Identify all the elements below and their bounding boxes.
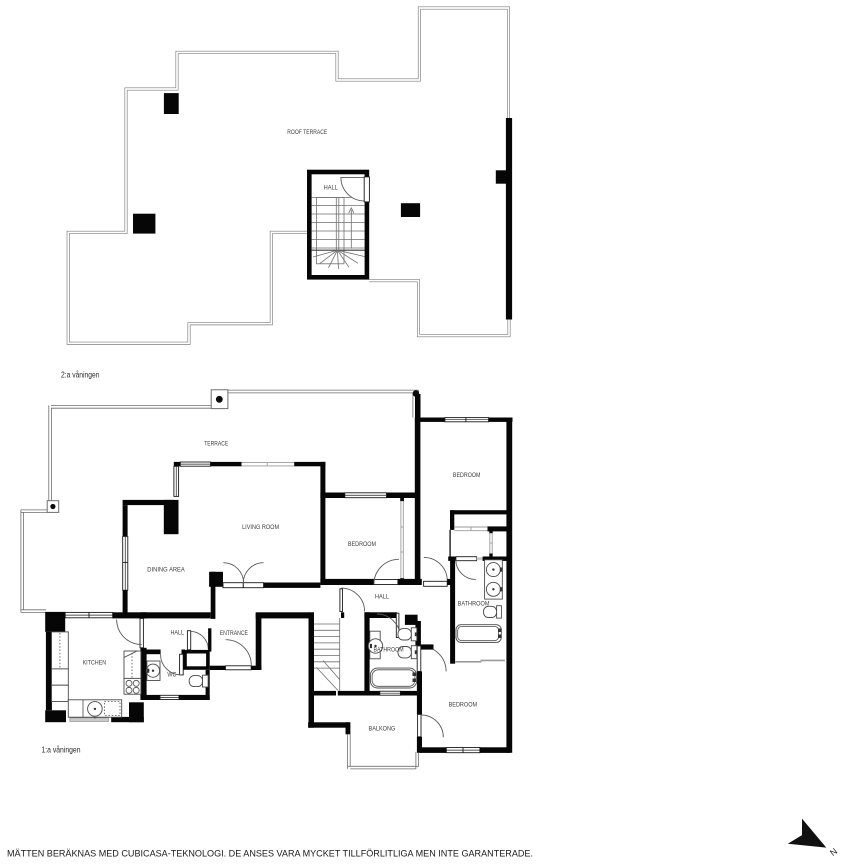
svg-text:HALL: HALL xyxy=(324,185,339,191)
svg-text:HALL: HALL xyxy=(375,594,390,600)
svg-text:2:a våningen: 2:a våningen xyxy=(61,370,100,379)
svg-text:BALKONG: BALKONG xyxy=(369,726,396,732)
svg-text:HALL: HALL xyxy=(171,631,185,637)
svg-text:WC: WC xyxy=(167,672,177,678)
svg-text:LIVING ROOM: LIVING ROOM xyxy=(242,525,279,531)
svg-text:ROOF TERRACE: ROOF TERRACE xyxy=(287,130,327,136)
svg-text:MÄTTEN BERÄKNAS MED CUBICASA-T: MÄTTEN BERÄKNAS MED CUBICASA-TEKNOLOGI. … xyxy=(7,849,533,859)
svg-text:DINING AREA: DINING AREA xyxy=(147,567,185,573)
svg-text:BATHROOM: BATHROOM xyxy=(374,648,404,654)
svg-text:TERRACE: TERRACE xyxy=(204,441,228,447)
svg-text:KITCHEN: KITCHEN xyxy=(83,661,107,667)
svg-text:BEDROOM: BEDROOM xyxy=(449,702,478,708)
svg-text:1:a våningen: 1:a våningen xyxy=(42,746,81,755)
svg-text:BEDROOM: BEDROOM xyxy=(348,542,376,548)
svg-text:BATHROOM: BATHROOM xyxy=(458,602,490,608)
svg-text:ENTRANCE: ENTRANCE xyxy=(220,631,248,637)
svg-text:BEDROOM: BEDROOM xyxy=(453,473,481,479)
